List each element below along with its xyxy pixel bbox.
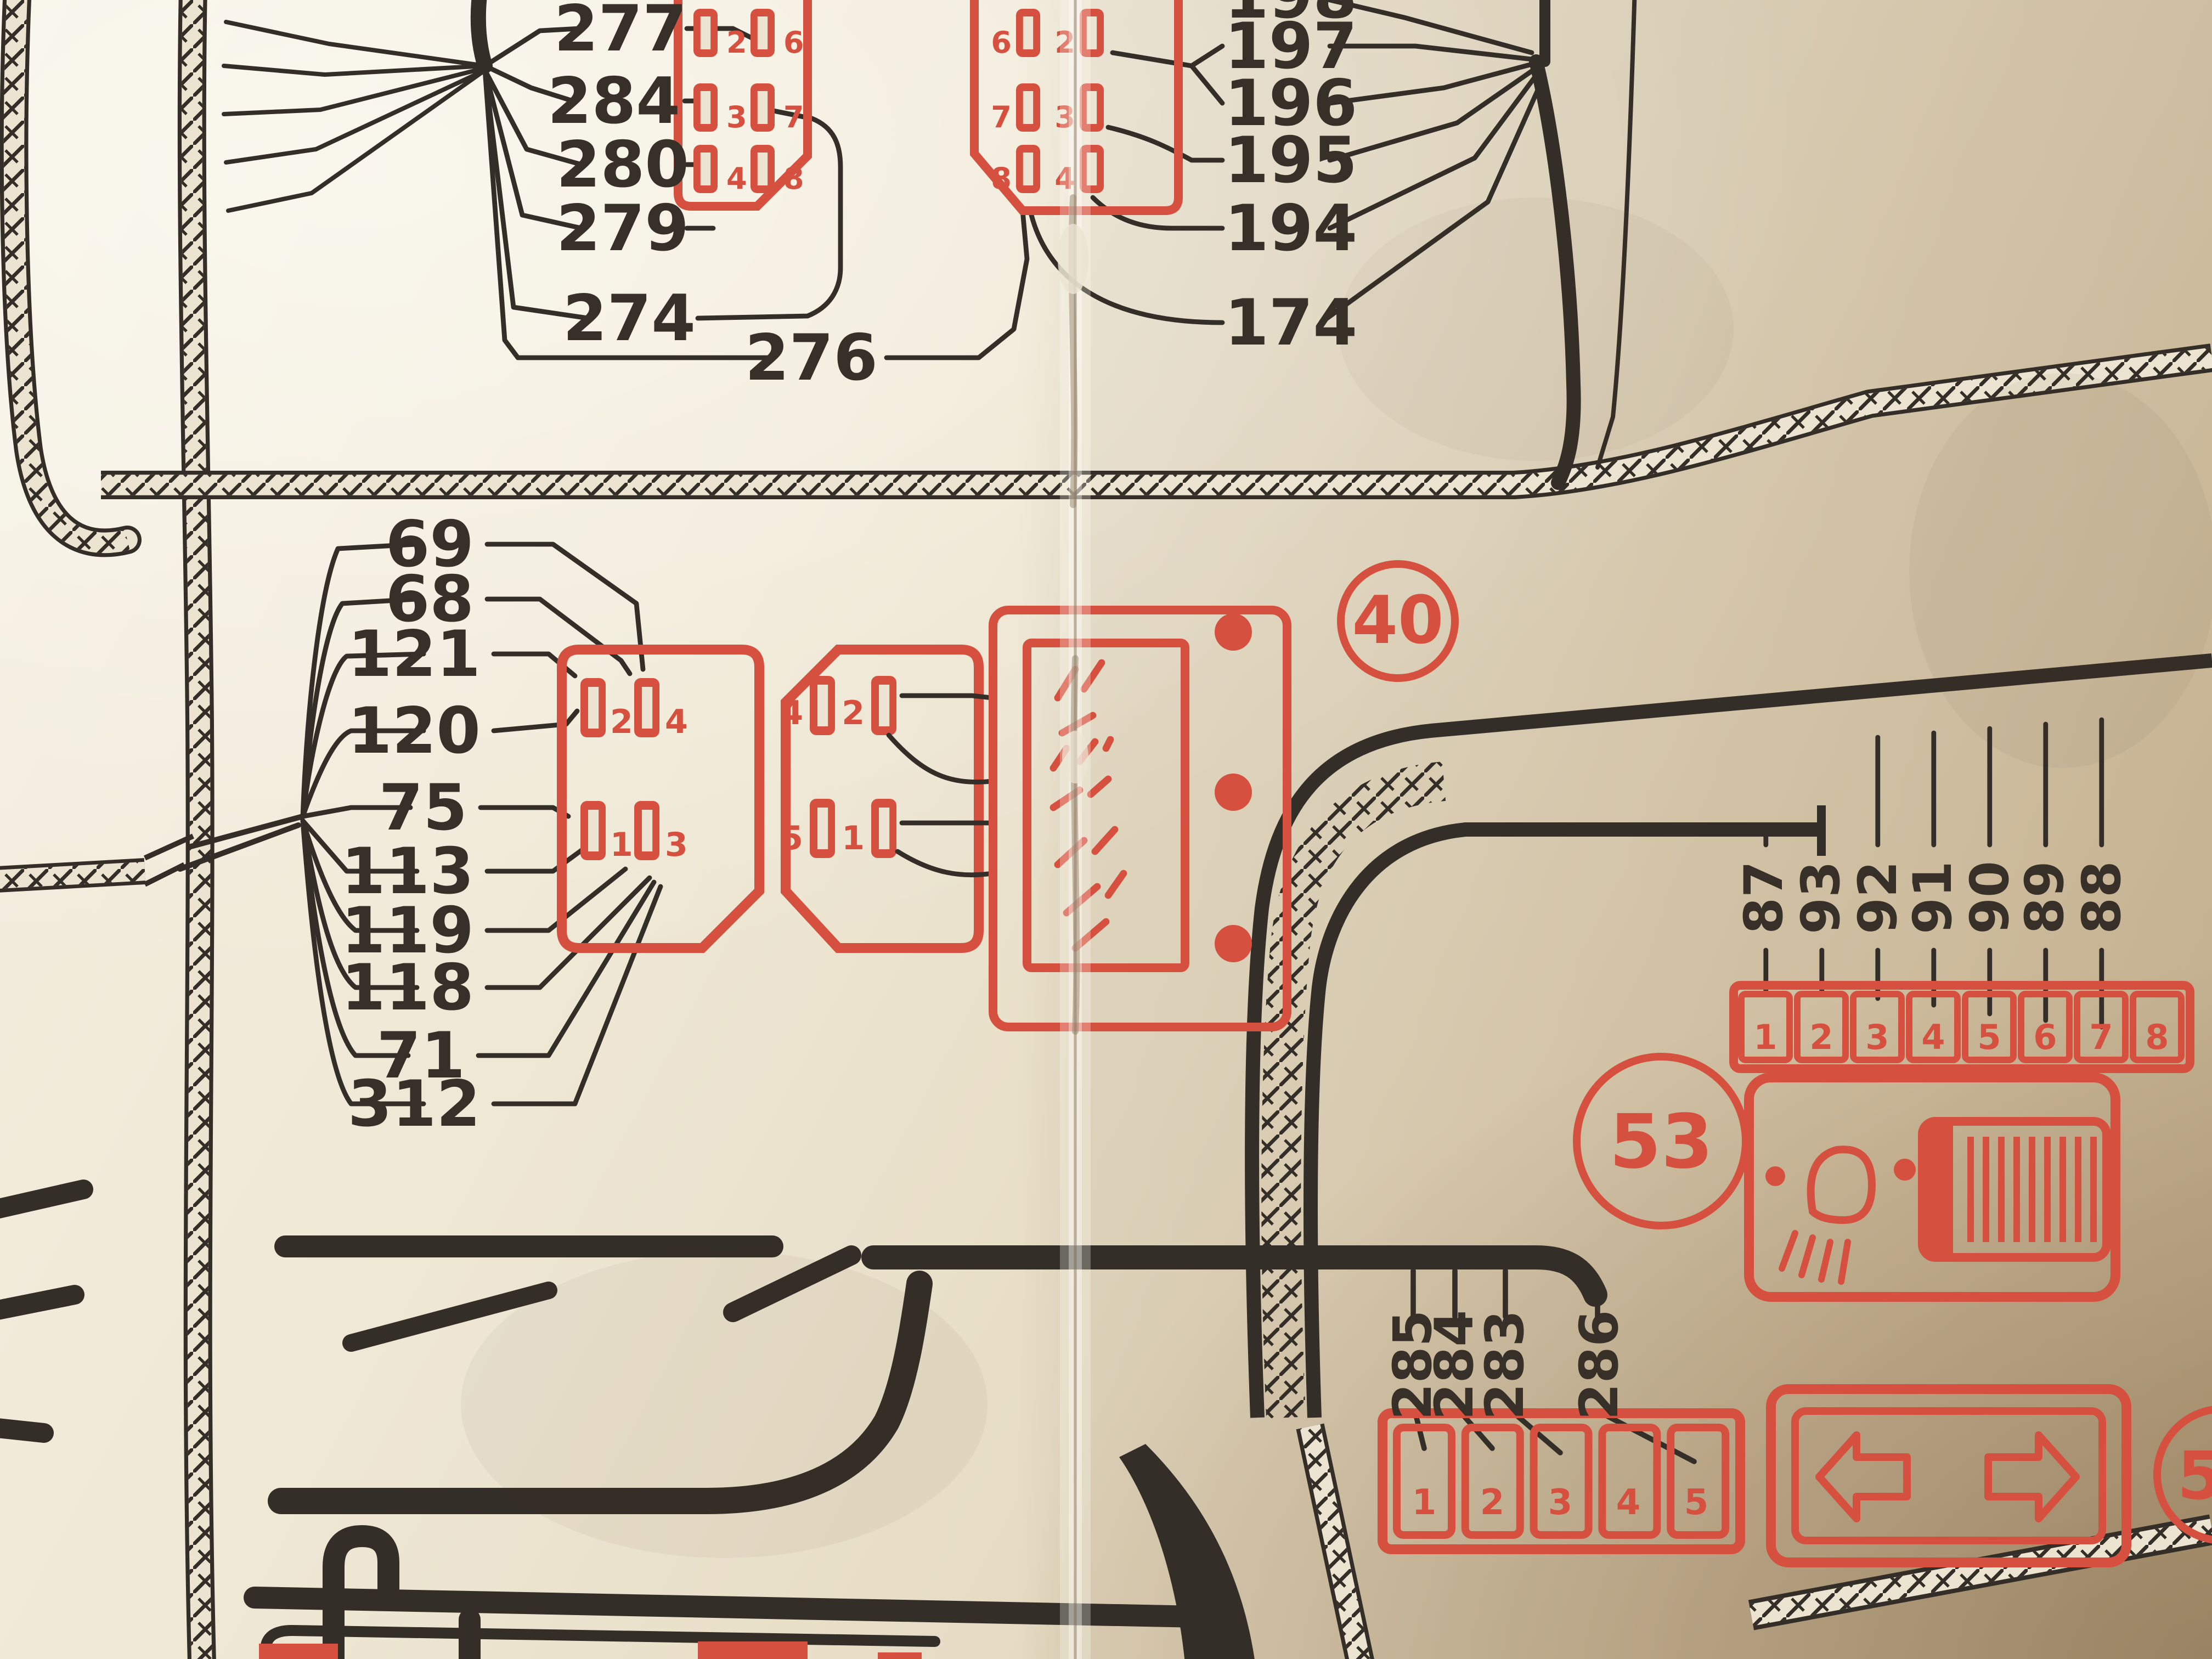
pin-label: 3	[726, 100, 747, 134]
component-number: 40	[1352, 583, 1444, 659]
pin-label: 2	[726, 25, 747, 60]
red-fragment	[878, 1652, 922, 1659]
coil-icon	[1894, 1121, 2107, 1257]
callout-label: 195	[1224, 123, 1357, 198]
connector-top-left: 2 3 4 6 7 8	[678, 0, 808, 206]
callouts-upper-right: 198 197 196 195 194 174	[1224, 0, 1357, 360]
connector-mid-left: 2 4 1 3	[562, 650, 759, 948]
callout-label: 174	[1224, 286, 1357, 360]
callout-label: 194	[1224, 191, 1357, 266]
contact-dots-icon	[1215, 613, 1252, 962]
callout-label: 93	[1790, 861, 1852, 934]
cell-number: 7	[2089, 1017, 2113, 1057]
callout-label: 121	[348, 617, 481, 691]
red-fragment	[698, 1641, 808, 1659]
callout-label: 312	[348, 1067, 481, 1141]
arrow-right-icon	[1988, 1435, 2076, 1519]
cells	[1741, 994, 2181, 1060]
pin-label: 3	[665, 826, 688, 864]
cell-number: 2	[1480, 1482, 1505, 1523]
callout-label: 279	[556, 191, 689, 266]
callout-label: 284	[548, 64, 680, 138]
callout-label: 88	[2071, 861, 2132, 934]
callout-label: 90	[1959, 861, 2021, 934]
cell-number: 2	[1809, 1017, 1833, 1057]
pin-label: 1	[610, 826, 633, 864]
cell-number: 3	[1548, 1482, 1573, 1523]
pin-label: 2	[842, 694, 865, 732]
callout-label: 120	[348, 694, 481, 768]
loom-band-bottom-small	[1310, 1426, 1361, 1659]
paper-crease	[1058, 0, 1091, 1659]
pin-label: 1	[842, 819, 865, 857]
callouts-right-rotated: 87 93 92 91 90 89 88	[1733, 861, 2132, 934]
loom-band-left-hook	[14, 0, 127, 543]
pin-label: 2	[610, 703, 633, 741]
loom-band-vertical	[192, 0, 202, 1659]
cell-number: 4	[1921, 1017, 1945, 1057]
callout-label: 87	[1733, 861, 1795, 934]
pin-label: 4	[665, 703, 688, 741]
callout-label: 118	[341, 951, 474, 1025]
pin-label: 8	[991, 161, 1012, 196]
headlight-icon	[1765, 1149, 1872, 1282]
pin-label: 4	[726, 161, 747, 196]
pin-label: 7	[783, 100, 804, 134]
pin-label: 7	[991, 100, 1012, 134]
component-53: 53	[1577, 1057, 2115, 1297]
callouts-bottom-center: 285 284 283 286	[1382, 1310, 1630, 1420]
cell-number: 1	[1753, 1017, 1777, 1057]
loom-band-horizontal	[101, 358, 2212, 485]
cell-number: 6	[2033, 1017, 2057, 1057]
cell-number: 1	[1412, 1482, 1437, 1523]
component-number: 53	[1609, 1099, 1713, 1186]
cell-number: 5	[1977, 1017, 2001, 1057]
connector-mid-right: 4 2 5 1	[780, 650, 992, 948]
loom-stub-mid-left	[0, 836, 193, 884]
pin-row-8: 1 2 3 4 5 6 7 8	[1734, 985, 2190, 1069]
pin-label: 6	[783, 25, 804, 60]
component-number: 54	[2177, 1438, 2212, 1515]
pin-label: 6	[991, 25, 1012, 60]
cell-number: 3	[1865, 1017, 1889, 1057]
wiring-diagram-photo: 2 3 4 6 7 8 6 7 8 2 3 4 2 4	[0, 0, 2212, 1659]
callout-label: 286	[1568, 1310, 1630, 1420]
callouts-upper-left: 277 284 280 279 274 276	[548, 0, 878, 395]
callout-label: 274	[563, 281, 696, 356]
callout-label: 75	[379, 771, 467, 845]
callout-label: 277	[554, 0, 687, 66]
pin-row-5: 1 2 3 4 5	[1383, 1413, 1740, 1549]
cell-number: 4	[1616, 1482, 1641, 1523]
callout-label: 276	[745, 321, 878, 395]
callout-label: 92	[1847, 861, 1909, 934]
callout-label: 280	[556, 128, 689, 202]
cell-number: 8	[2145, 1017, 2169, 1057]
dark-wedge	[1119, 1444, 1255, 1659]
arrow-left-icon	[1819, 1435, 1907, 1519]
pin-label: 5	[780, 819, 803, 857]
cell-number: 5	[1684, 1482, 1709, 1523]
pin-label: 8	[783, 161, 804, 196]
callout-label: 91	[1902, 861, 1963, 934]
wiring-diagram: 2 3 4 6 7 8 6 7 8 2 3 4 2 4	[0, 0, 2212, 1659]
callout-label: 283	[1474, 1310, 1536, 1420]
callout-label: 89	[2014, 861, 2075, 934]
red-fragment	[259, 1644, 338, 1659]
pin-label: 4	[780, 694, 803, 732]
